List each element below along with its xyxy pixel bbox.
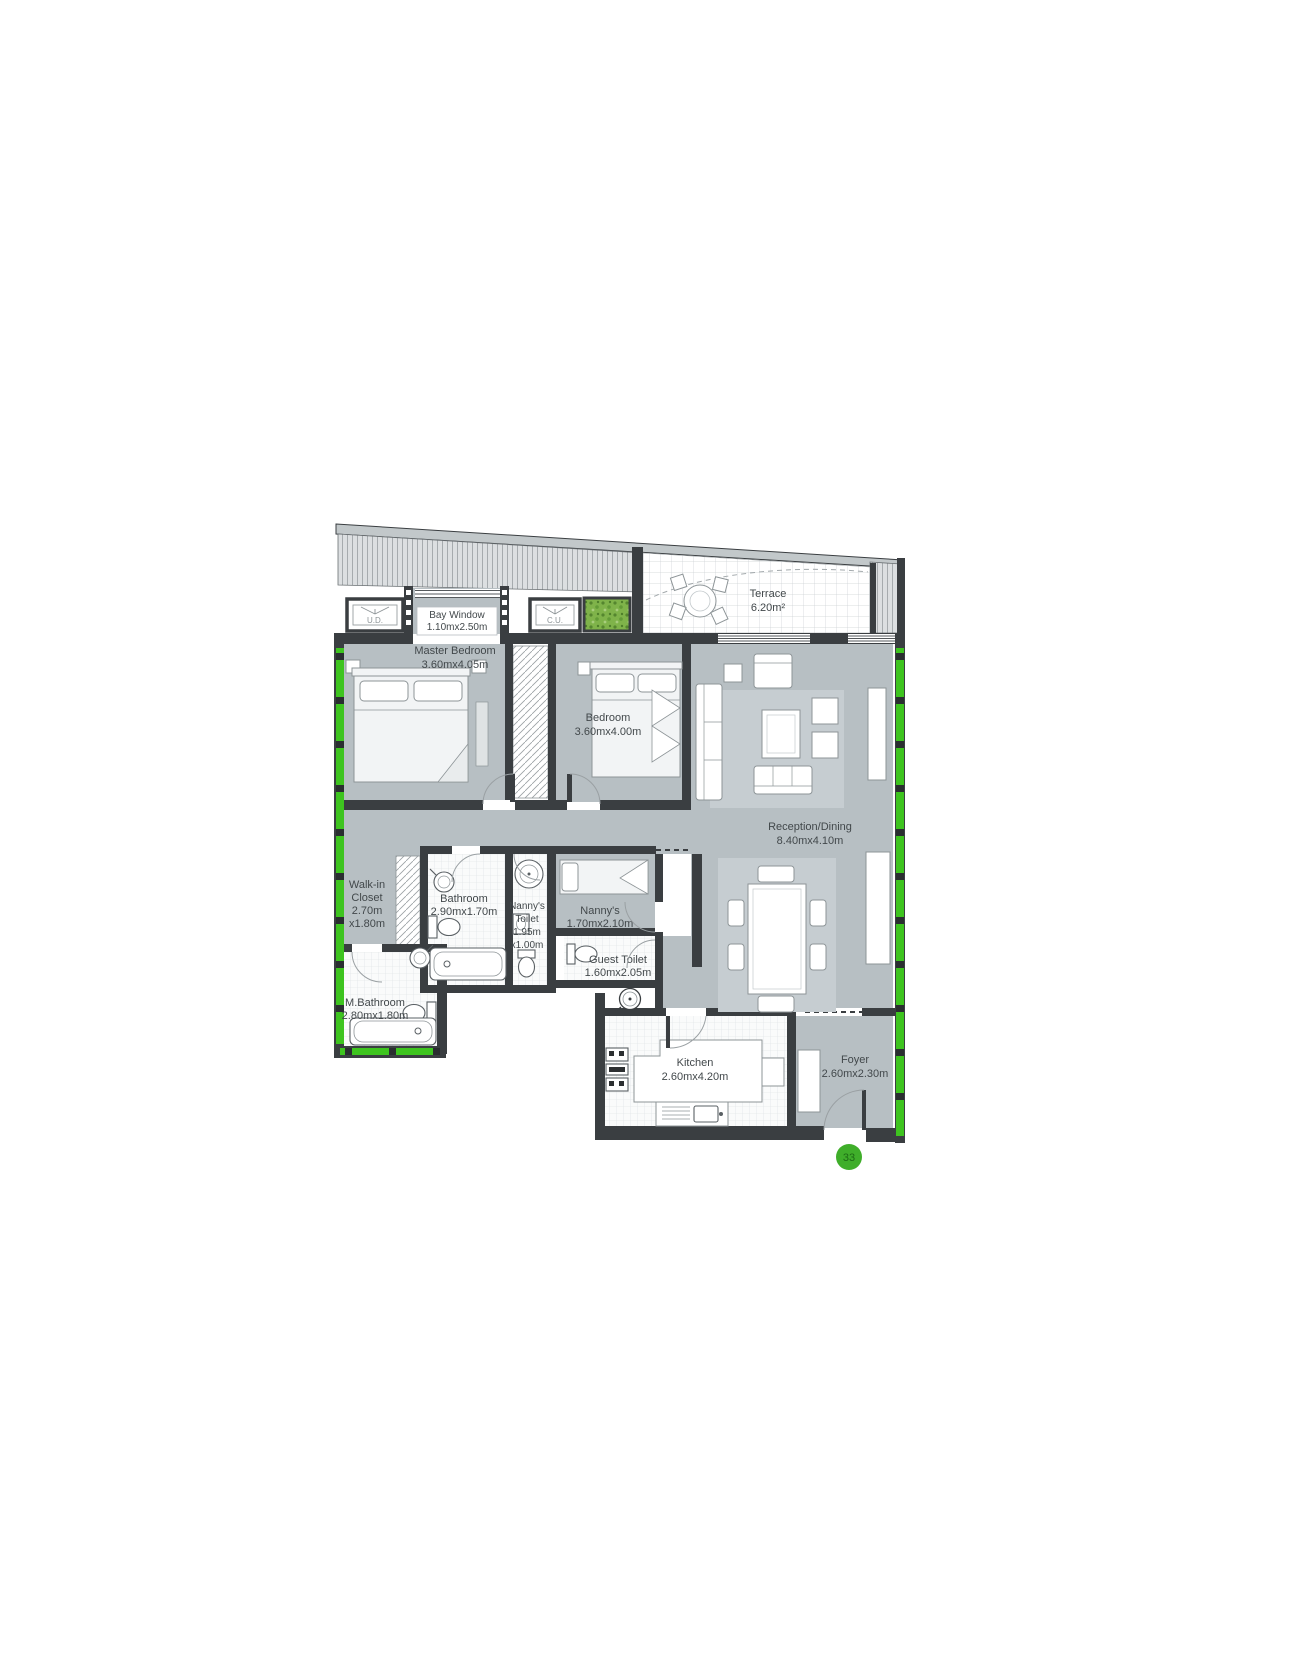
shower-icon [515, 860, 543, 888]
master-bedroom-dims: 3.60mx4.05m [422, 659, 489, 671]
floor-plan-page: Terrace 6.20m² U.D. Bay Window 1.10mx2.5… [0, 0, 1304, 1663]
terrace-label: Terrace [750, 588, 787, 600]
nannys-toilet-label-3: 1.95m [513, 927, 541, 938]
terrace-dims: 6.20m² [751, 602, 786, 614]
guest-toilet-dims: 1.60mx2.05m [585, 967, 652, 979]
service-row: U.D. Bay Window 1.10mx2.50m C.U. [347, 586, 630, 635]
reception-dims: 8.40mx4.10m [777, 835, 844, 847]
bench-icon [476, 702, 488, 766]
nannys-toilet-label-2: Toilet [515, 914, 539, 925]
foyer-dims: 2.60mx2.30m [822, 1068, 889, 1080]
closet-label-4: x1.80m [349, 918, 385, 930]
foyer-closet-icon [798, 1050, 820, 1112]
stove-icon [606, 1048, 628, 1091]
reception-window [714, 633, 814, 644]
closet-wardrobe-icon [396, 856, 420, 948]
glazed-wall-right [896, 648, 904, 1136]
floor-plan-drawing: Terrace 6.20m² U.D. Bay Window 1.10mx2.5… [0, 0, 1304, 1663]
toilet-icon [518, 950, 535, 977]
mbathroom-label: M.Bathroom [345, 997, 405, 1009]
room-walk-in-closet: Walk-in Closet 2.70m x1.80m [349, 879, 385, 930]
windows [714, 633, 895, 644]
closet-label-3: 2.70m [352, 905, 383, 917]
unit-number: 33 [843, 1152, 855, 1164]
closet-label-2: Closet [351, 892, 382, 904]
bathtub-icon [430, 948, 506, 980]
nannys-toilet-label-4: x1.00m [511, 940, 544, 951]
bathroom-label: Bathroom [440, 893, 488, 905]
bay-window: Bay Window 1.10mx2.50m [413, 588, 500, 635]
pillar-right [500, 586, 509, 633]
lobby-floor [663, 936, 692, 1008]
nannys-label: Nanny's [580, 905, 620, 917]
kitchen-door-leaf [666, 1016, 670, 1048]
bedroom-door-leaf [567, 774, 572, 802]
kitchen-sink-icon [656, 1102, 728, 1126]
reception-label: Reception/Dining [768, 821, 852, 833]
kitchen-label: Kitchen [677, 1057, 714, 1069]
ac-ud-label: U.D. [367, 616, 383, 625]
mbathroom-dims: 2.80mx1.80m [342, 1010, 409, 1022]
ac-cu-label: C.U. [547, 616, 563, 625]
master-door-leaf [510, 774, 515, 802]
sideboard-icon [866, 852, 890, 964]
foyer-label: Foyer [841, 1054, 869, 1066]
bathtub-icon [350, 1018, 436, 1045]
bed-icon [560, 860, 648, 894]
bathroom-dims: 2.90mx1.70m [431, 906, 498, 918]
glazed-wall-left [336, 648, 344, 1044]
console-icon [868, 688, 886, 780]
glazed-wall-bottom [340, 1048, 440, 1055]
master-bedroom-label: Master Bedroom [414, 645, 495, 657]
bay-window-dims: 1.10mx2.50m [427, 622, 488, 633]
nannys-toilet-label-1: Nanny's [509, 901, 545, 912]
reception-window-2 [844, 633, 895, 644]
nannys-dims: 1.70mx2.10m [567, 918, 634, 930]
pillar-left [404, 586, 413, 633]
unit-number-badge: 33 [836, 1144, 862, 1170]
ac-unit-ud: U.D. [347, 599, 403, 631]
planter-box [584, 598, 630, 631]
room-terrace: Terrace 6.20m² [643, 553, 870, 633]
bedroom-label: Bedroom [586, 712, 631, 724]
ac-unit-cu: C.U. [530, 599, 580, 631]
closet-label-1: Walk-in [349, 879, 385, 891]
wardrobe-icon [513, 646, 548, 798]
bed-icon [346, 660, 486, 782]
guest-toilet-label: Guest Toilet [589, 954, 647, 966]
kitchen-dims: 2.60mx4.20m [662, 1071, 729, 1083]
bay-window-label: Bay Window [429, 610, 485, 621]
bedroom-dims: 3.60mx4.00m [575, 726, 642, 738]
entry-door-leaf [862, 1090, 866, 1130]
